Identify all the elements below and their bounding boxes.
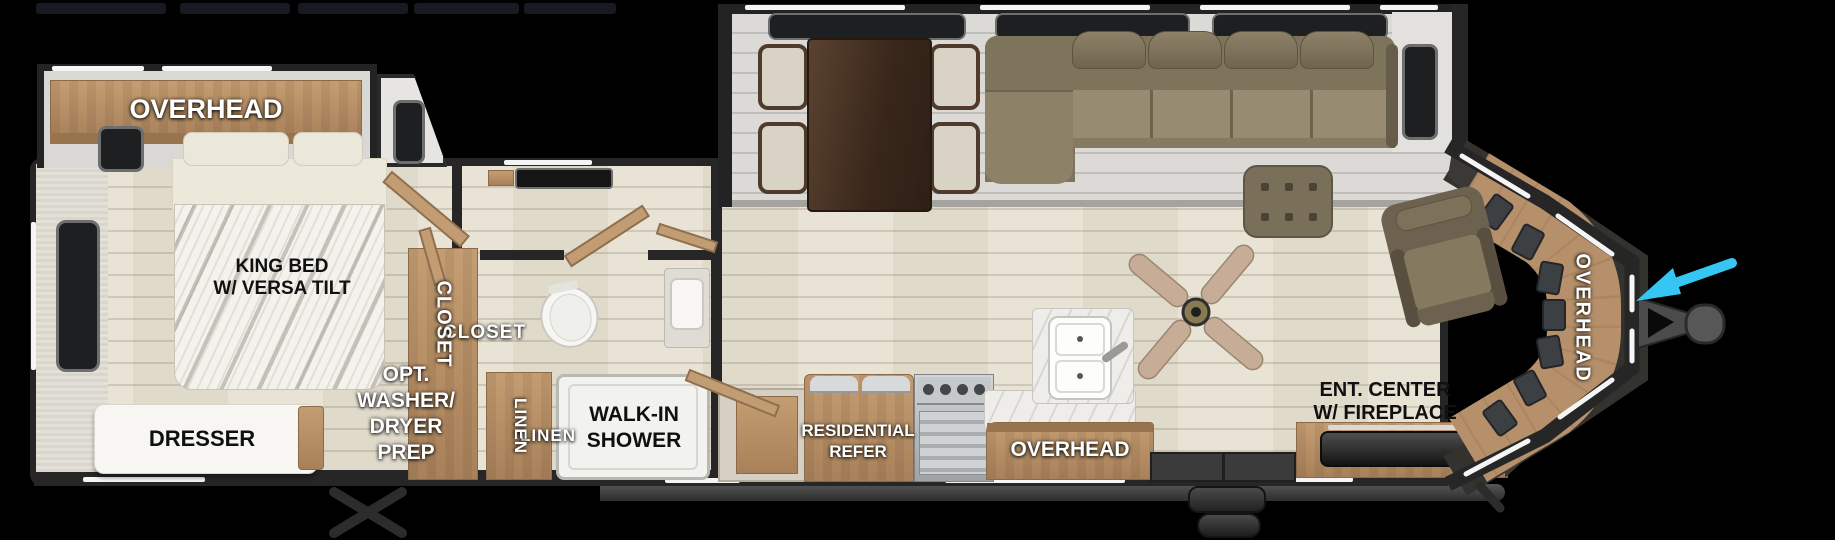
frame-rail (600, 484, 1505, 501)
ottoman-button (1285, 213, 1293, 221)
burner (940, 384, 951, 395)
shower-label: WALK-IN SHOWER (587, 402, 682, 454)
refer-label: RESIDENTIAL REFER (801, 420, 914, 462)
front-cap-window (1478, 193, 1565, 436)
linen-vlabel-pos: LINEN (510, 398, 530, 454)
entry-step (1197, 513, 1261, 538)
watermark-block (524, 3, 616, 14)
wall-accent (504, 160, 592, 165)
hitch (1638, 298, 1724, 348)
watermark-strip (36, 3, 616, 15)
wall-accent (83, 477, 205, 482)
sofa-front-edge (1073, 138, 1395, 148)
dinette-table (807, 38, 932, 212)
slideout-accent (52, 66, 144, 71)
sofa-arm (1386, 44, 1398, 148)
refer-label-line2: REFER (801, 441, 914, 462)
sink-drain (1077, 373, 1083, 379)
sofa-headrest (1072, 31, 1146, 69)
washer-prep-label: OPT. WASHER/ DRYER PREP (357, 362, 455, 466)
bed-label: KING BED W/ VERSA TILT (213, 256, 350, 300)
watermark-block (36, 3, 166, 14)
bedroom-overhead-label: OVERHEAD (129, 94, 282, 125)
washer-prep-line3: DRYER (357, 414, 455, 440)
ent-center-label: ENT. CENTER W/ FIREPLACE (1313, 379, 1456, 425)
dinette-chair (758, 122, 808, 194)
slideout-wall-right (1452, 4, 1468, 160)
vanity-sink (670, 278, 704, 330)
slideout-accent (1380, 5, 1438, 10)
sofa-chaise (985, 90, 1073, 184)
bed-pillow (183, 132, 289, 166)
slideout-end-window (1402, 44, 1438, 140)
dinette-chair (758, 44, 808, 110)
washer-prep-line4: PREP (357, 440, 455, 466)
fireplace-screen (1320, 431, 1494, 467)
dinette-chair (930, 44, 980, 110)
rear-window (56, 220, 100, 372)
washer-prep-line2: WASHER/ (357, 388, 455, 414)
burner (957, 384, 968, 395)
bath-wall-top (480, 250, 564, 260)
front-overhead-label: OVERHEAD (1571, 253, 1594, 382)
bed-label-line1: KING BED (213, 256, 350, 278)
closet-vlabel-pos: CLOSET (432, 280, 455, 367)
front-cap-shadow (1505, 396, 1552, 478)
ottoman-button (1309, 213, 1317, 221)
oven-door (919, 411, 991, 475)
stabilizer-jack (334, 492, 402, 533)
slideout-accent (980, 5, 1150, 10)
watermark-block (180, 3, 290, 14)
bath-wall-top (648, 250, 722, 260)
watermark-block (414, 3, 519, 14)
dinette-chair (930, 122, 980, 194)
watermark-block (298, 3, 408, 14)
ottoman-button (1309, 183, 1317, 191)
kitchen-overhead-edge (987, 423, 1153, 432)
bedroom-wall (452, 166, 462, 250)
ottoman-button (1261, 183, 1269, 191)
ottoman-button (1261, 213, 1269, 221)
entry-door-seam (1222, 454, 1225, 480)
floorplan: OVERHEAD KING BED W/ VERSA TILT DRESSER … (0, 0, 1835, 540)
ent-center-top-trim (1328, 425, 1486, 430)
shower-label-line2: SHOWER (587, 428, 682, 454)
refrigerator-door (862, 376, 910, 393)
slideout-accent (1200, 5, 1350, 10)
range-stove (914, 374, 994, 482)
slideout-window (768, 13, 966, 40)
sofa-headrest (1300, 31, 1374, 69)
tv-shelf (488, 170, 514, 186)
slideout-accent (745, 5, 905, 10)
rear-wall-accent (31, 222, 36, 370)
entry-door (1150, 452, 1296, 482)
bedroom-slide-window (98, 126, 144, 172)
sofa-headrest (1148, 31, 1222, 69)
ottoman-button (1285, 183, 1293, 191)
bed-pillow (293, 132, 363, 166)
entry-step (1188, 486, 1266, 513)
dresser-label: DRESSER (149, 426, 255, 451)
sofa-headrest (1224, 31, 1298, 69)
shower-label-line1: WALK-IN (587, 402, 682, 428)
ottoman (1243, 165, 1333, 238)
dresser-side (298, 406, 324, 470)
slideout-accent (162, 66, 272, 71)
bed-label-line2: W/ VERSA TILT (213, 278, 350, 300)
refer-label-line1: RESIDENTIAL (801, 420, 914, 441)
entry-arrow-icon (1636, 263, 1732, 301)
refrigerator-door (810, 376, 858, 393)
kitchen-overhead-label: OVERHEAD (1010, 438, 1129, 462)
sink-drain (1077, 336, 1083, 342)
cooktop (917, 377, 991, 405)
ent-center-line1: ENT. CENTER (1313, 379, 1456, 402)
wardrobe-panel (393, 100, 425, 164)
pantry-shelves (736, 396, 798, 474)
burner (923, 384, 934, 395)
closet-label: CLOSET (443, 322, 526, 344)
tv (515, 168, 613, 189)
ent-center-line2: W/ FIREPLACE (1313, 402, 1456, 425)
